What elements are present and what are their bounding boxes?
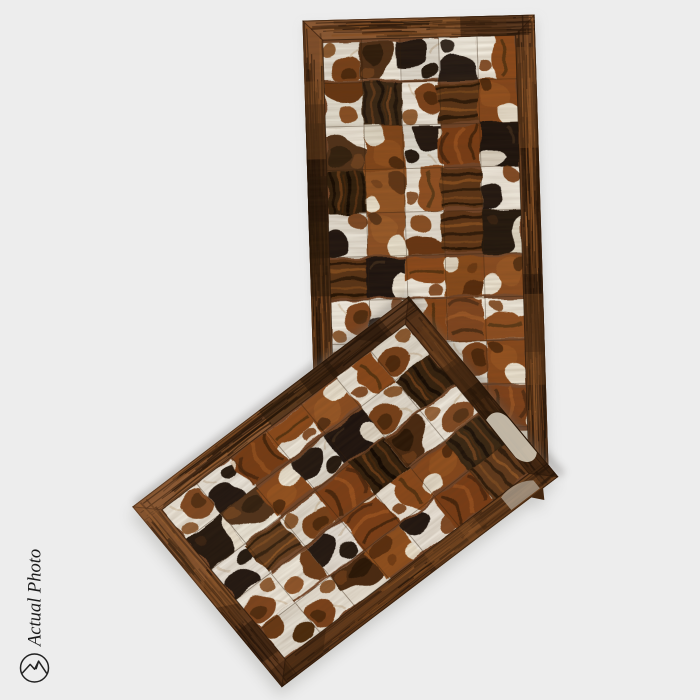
svg-text:Actual Photo: Actual Photo: [26, 549, 46, 648]
